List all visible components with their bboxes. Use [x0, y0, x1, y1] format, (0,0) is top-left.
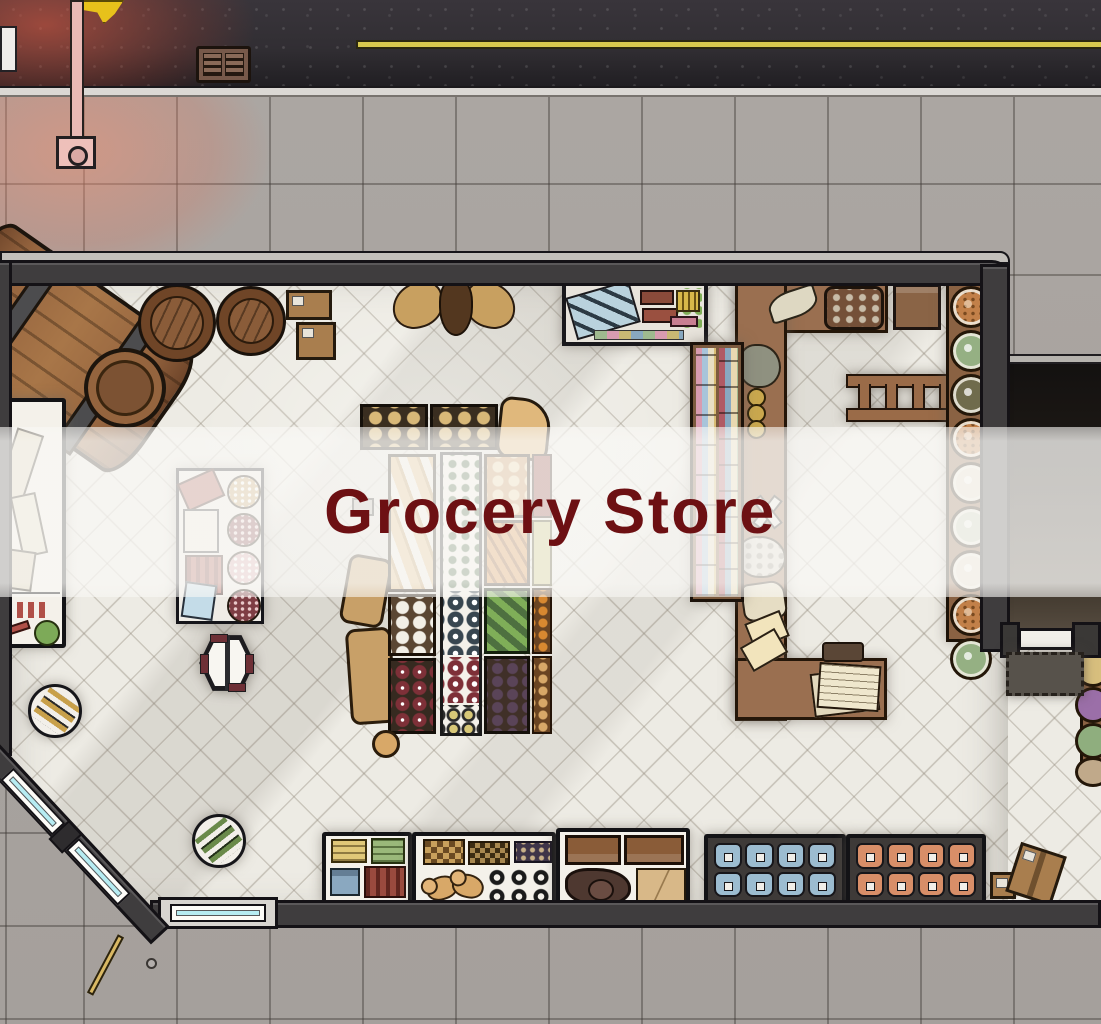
- barrel-top-2: [216, 286, 286, 356]
- blue-jar-case: [704, 834, 846, 906]
- storm-drain-icon: [196, 46, 251, 83]
- barrel-end-cap: [84, 348, 166, 428]
- orange-jar-case: [846, 834, 986, 906]
- pebble: [146, 958, 157, 969]
- blue-box: [330, 868, 360, 896]
- checker-board: [468, 841, 510, 865]
- supply-crate-icon: [286, 290, 332, 320]
- yellow-box: [331, 839, 367, 863]
- red-lid-jars: [443, 657, 479, 703]
- grocery-store-map: Grocery Store: [0, 0, 1101, 1024]
- alley-curb: [1008, 354, 1101, 364]
- lamp-post: [70, 0, 84, 154]
- goods-basket-icon: [824, 286, 884, 330]
- note-papers: [744, 616, 788, 664]
- street-center-line: [356, 40, 1101, 49]
- onion-basket: [532, 656, 552, 734]
- grape-crate: [484, 656, 530, 734]
- checkout-bench: [893, 284, 941, 330]
- cheese-wheel-icon: [34, 620, 60, 646]
- round-table-2: [192, 814, 246, 868]
- ink-pot-icon: [822, 642, 864, 662]
- small-parcels: [594, 330, 684, 340]
- checker-board: [423, 839, 465, 865]
- cloth-roll-icon: [640, 290, 674, 305]
- map-title: Grocery Store: [324, 476, 777, 548]
- red-crate: [364, 866, 406, 898]
- dotted-board: [514, 841, 552, 863]
- goods-shelf: [562, 282, 708, 346]
- comb-goods-icon: [676, 290, 700, 312]
- plant-pot-icon: [739, 344, 781, 388]
- orange-basket: [532, 588, 552, 654]
- pink-bar-icon: [670, 316, 698, 327]
- door-mat: [1006, 652, 1084, 696]
- wall-bottom: [150, 900, 1101, 928]
- ledger-stack: [810, 662, 886, 714]
- teddy-bear-icon: [450, 870, 487, 901]
- yellow-lid-jars: [443, 705, 479, 733]
- curb: [0, 86, 1101, 97]
- supply-crate-icon: [296, 322, 336, 360]
- storefront-window: [170, 904, 266, 922]
- blue-lid-jars: [443, 591, 479, 655]
- green-bean-crate: [484, 588, 530, 654]
- street-light-glow: [0, 0, 300, 88]
- hex-table: [198, 634, 256, 692]
- toy-shelf: [412, 832, 556, 907]
- sofa-icon: [624, 835, 684, 865]
- green-box: [371, 838, 405, 864]
- back-door: [1018, 628, 1074, 650]
- lamp-post-base: [56, 136, 96, 169]
- box-shelf: [322, 832, 412, 904]
- moose-head-icon: [439, 278, 473, 336]
- wall-top: [0, 260, 1010, 286]
- mushroom-crate: [388, 594, 436, 656]
- sofa-icon: [565, 835, 621, 865]
- plum-crate: [388, 658, 436, 734]
- title-banner: Grocery Store: [0, 427, 1101, 597]
- crosswalk-stripe: [0, 26, 17, 72]
- furniture-shelf: [556, 828, 690, 907]
- round-table-1: [28, 684, 82, 738]
- barrel-top-1: [138, 284, 216, 362]
- sausage-sticks-icon: [6, 602, 48, 618]
- loose-onion-icon: [372, 730, 400, 758]
